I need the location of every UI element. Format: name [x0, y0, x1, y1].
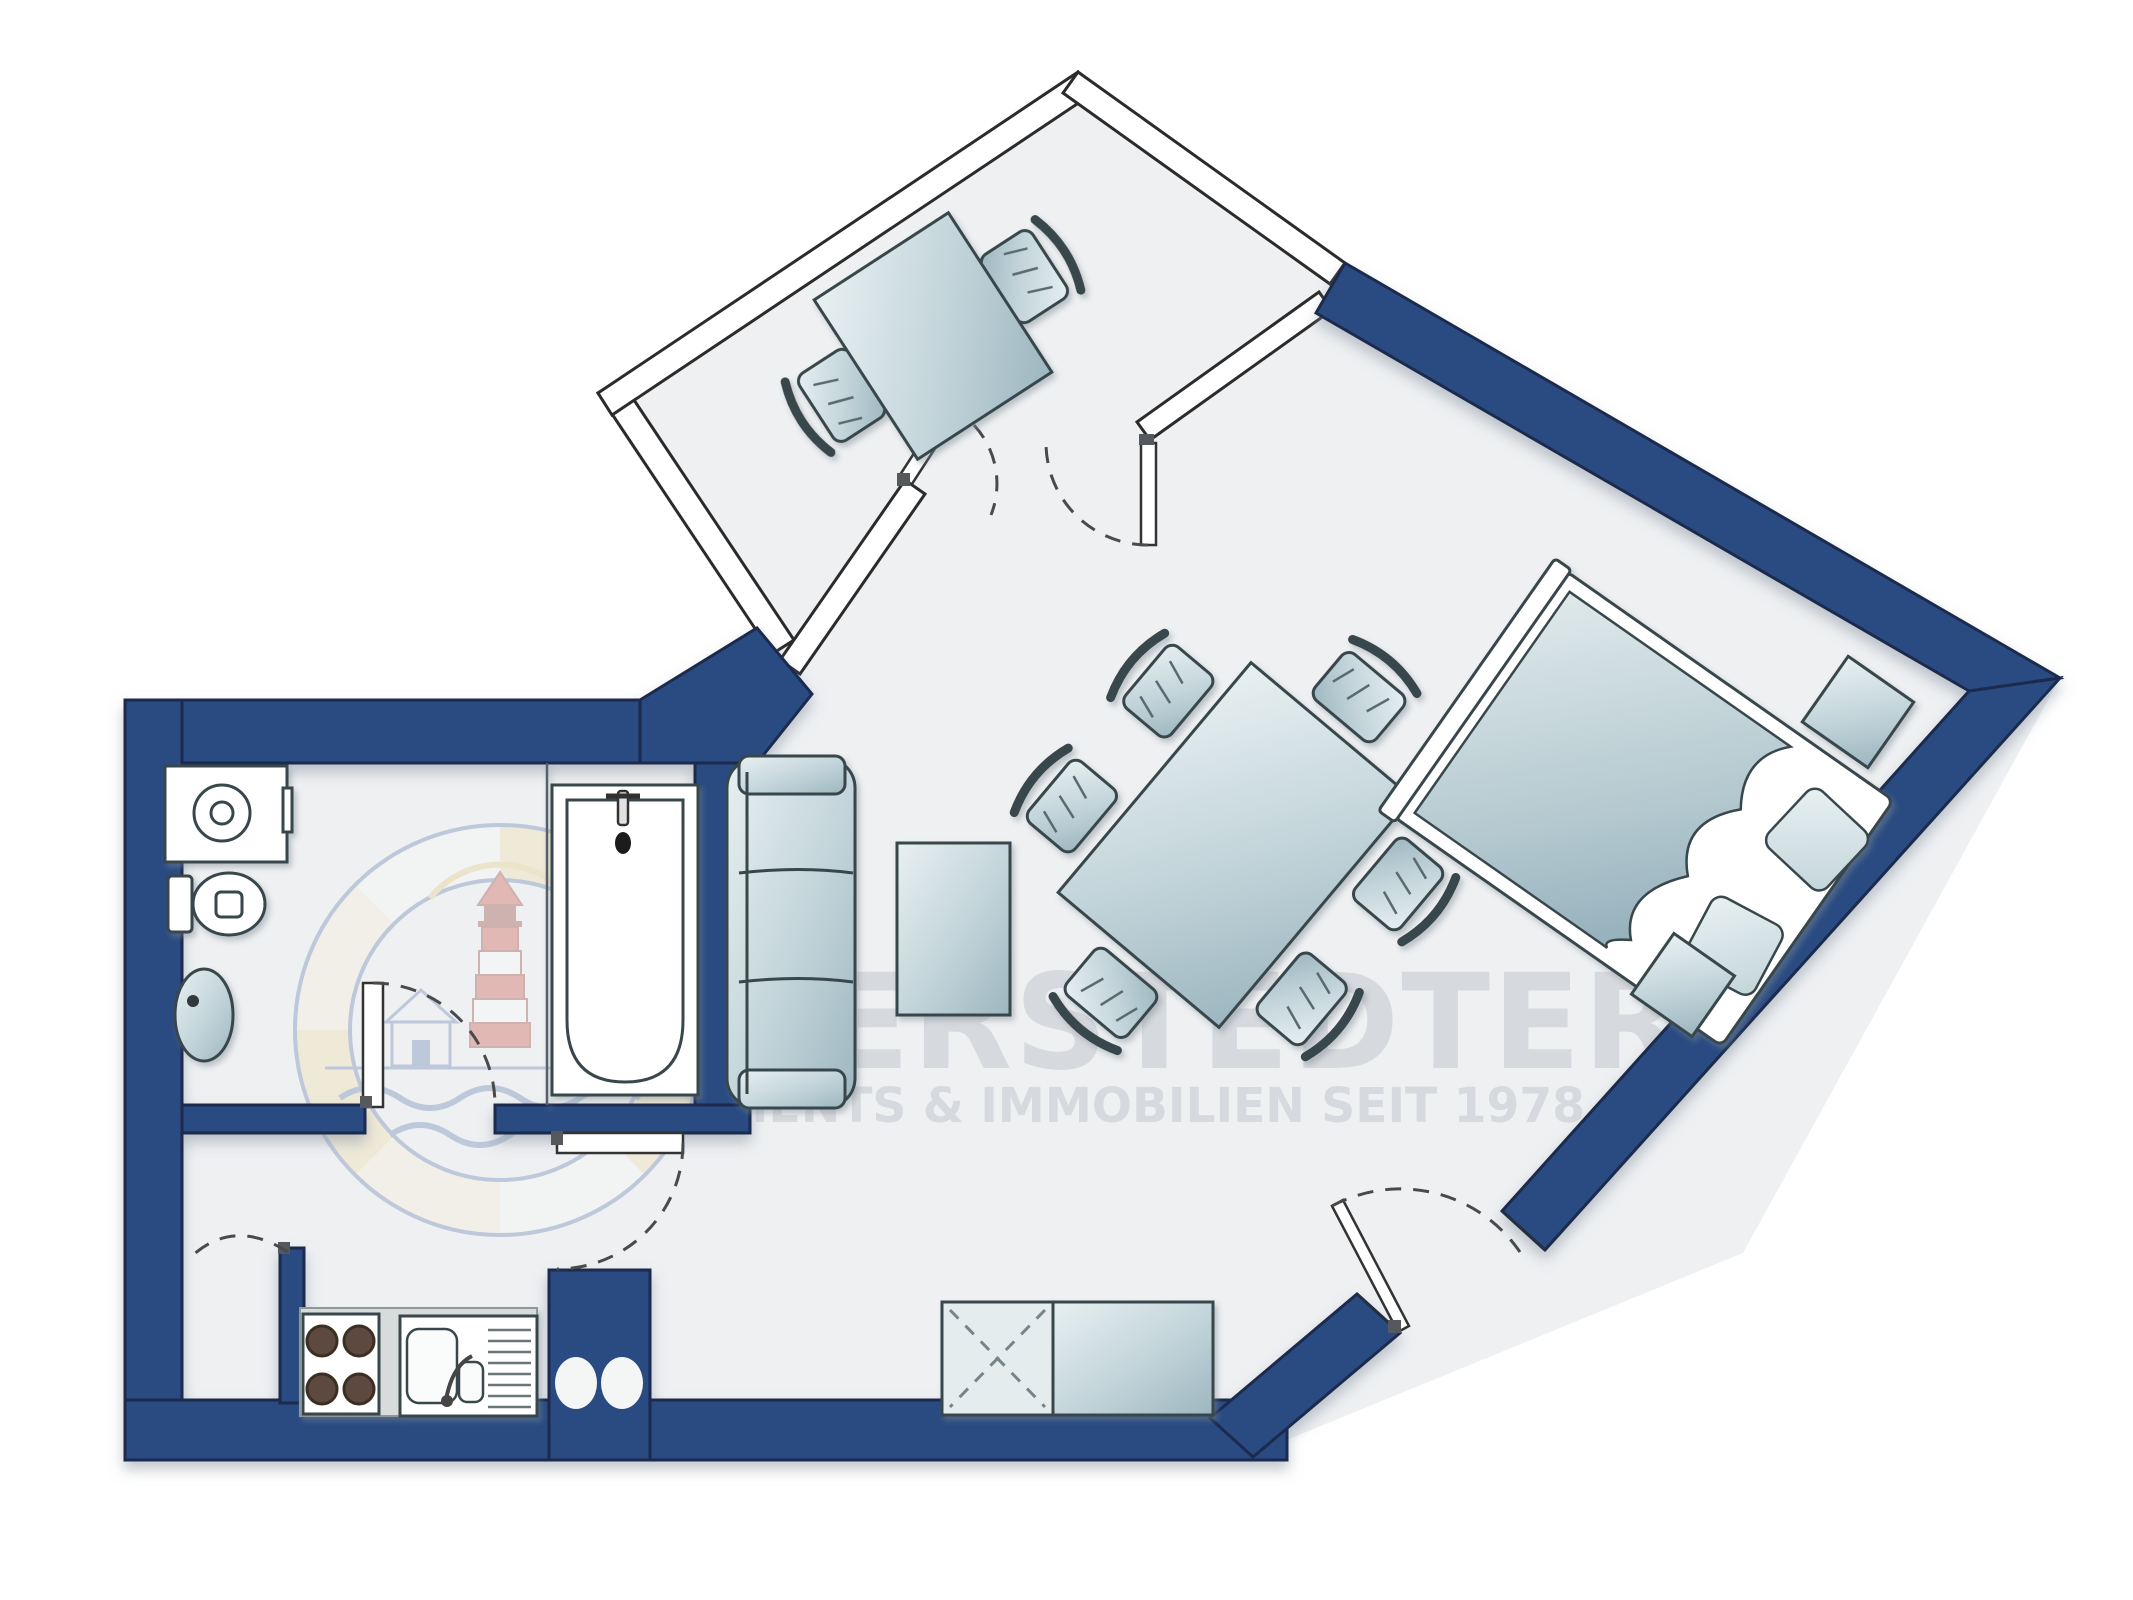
hob-oval [555, 1357, 597, 1409]
sideboard [1053, 1302, 1213, 1415]
bathtub [547, 763, 698, 1105]
wall-bathroom-bottom-right [495, 1105, 750, 1133]
washing-machine [165, 766, 292, 862]
floor-plan-drawing: EIDERSTEDTER APPARTEMENTS & IMMOBILIEN S… [0, 0, 2133, 1600]
sofa [727, 756, 855, 1108]
kitchen-stove [303, 1314, 379, 1414]
wall-bathroom-top [125, 700, 700, 763]
wall-kitchen-block [549, 1270, 650, 1460]
wall-bathroom-bottom-left [182, 1105, 365, 1133]
wash-basin [175, 969, 233, 1061]
wardrobe [942, 1302, 1053, 1415]
toilet [168, 873, 265, 935]
coffee-table [897, 843, 1010, 1015]
kitchen-sink [400, 1316, 537, 1416]
floor-plan-page: EIDERSTEDTER APPARTEMENTS & IMMOBILIEN S… [0, 0, 2133, 1600]
hob-oval [601, 1357, 643, 1409]
